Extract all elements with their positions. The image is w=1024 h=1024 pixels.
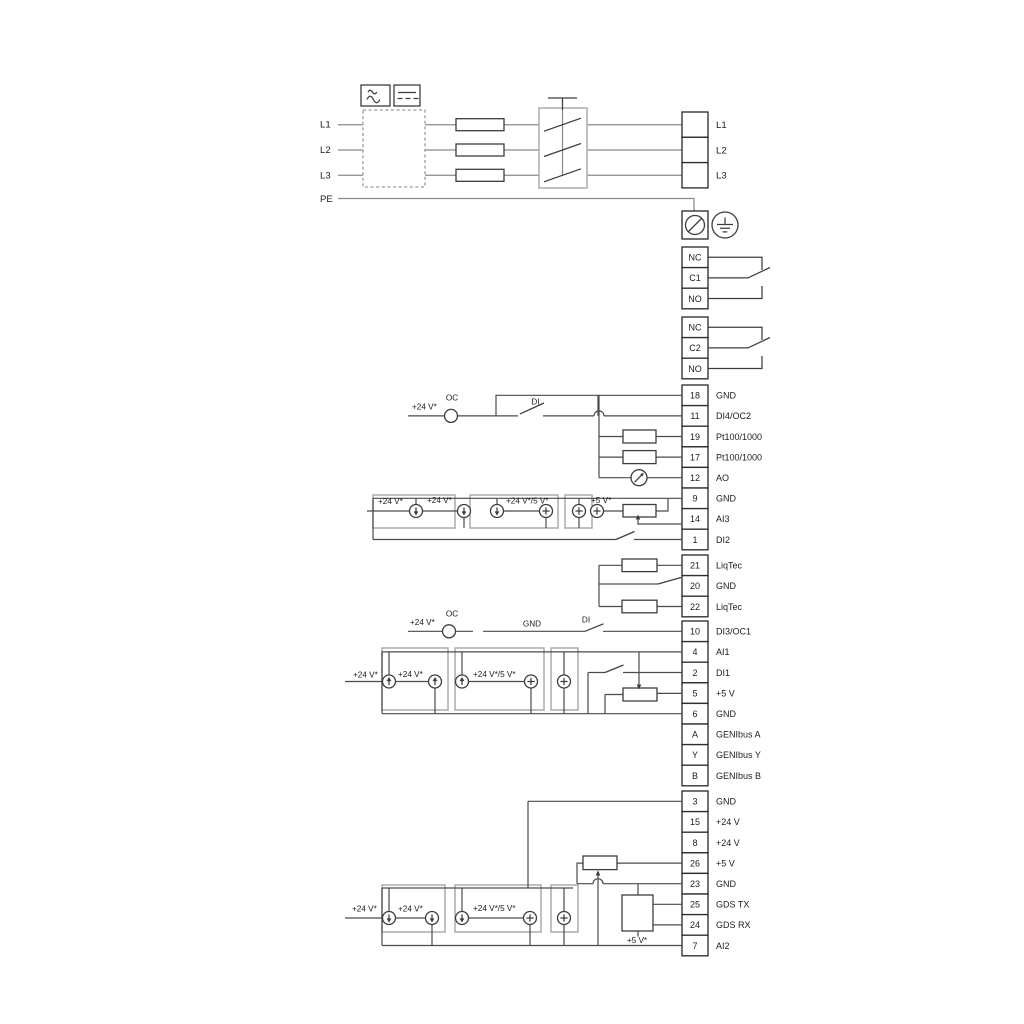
terminal-label: AI1 — [716, 647, 730, 657]
terminal-label: GND — [716, 709, 737, 719]
terminal-number: 7 — [692, 941, 697, 951]
earth-symbol — [712, 212, 738, 238]
potentiometer — [583, 856, 617, 876]
output-label-l2: L2 — [716, 145, 727, 156]
terminal-number: 20 — [690, 581, 700, 591]
current-source-icon — [458, 505, 471, 518]
annotation-24v-5v: +24 V*/5 V* — [473, 904, 516, 913]
terminal-number: 6 — [692, 709, 697, 719]
input-label-l2: L2 — [320, 145, 331, 156]
terminal-number: 18 — [690, 391, 700, 401]
ac-symbol-box — [361, 85, 390, 106]
terminal-number: 1 — [692, 535, 697, 545]
annotation-24v: +24 V* — [398, 905, 424, 914]
terminal-number: 21 — [690, 561, 700, 571]
terminal-number: 26 — [690, 858, 700, 868]
relay-terminal: NO — [688, 364, 702, 374]
mains-switch — [539, 98, 587, 188]
dc-symbol-box — [394, 85, 420, 106]
terminal-label: GENIbus Y — [716, 750, 761, 760]
terminal-label: Pt100/1000 — [716, 452, 762, 462]
oc-circle-icon — [445, 409, 458, 422]
input-label-l3: L3 — [320, 170, 331, 181]
relay-terminal: NC — [689, 323, 702, 333]
group1-circuit: +24 V* OC DI +24 V* +24 V* +24 V*/5 V* — [367, 394, 682, 540]
annotation-24v: +24 V* — [378, 497, 404, 506]
voltage-source-icon — [573, 505, 586, 518]
group3-circuit: +24 V* OC GND DI +24 V* +24 V* +24 V*/5 … — [345, 610, 682, 714]
terminal-number: 4 — [692, 647, 697, 657]
ao-meter-icon — [631, 470, 647, 486]
annotation-oc: OC — [446, 610, 458, 619]
annotation-gnd: GND — [523, 620, 541, 629]
annotation-di: DI — [582, 616, 590, 625]
terminal-group-2: 21 LiqTec 20 GND 22 LiqTec — [599, 555, 743, 617]
liqtec-resistor — [622, 600, 657, 613]
relay2-block: NC C2 NO — [682, 317, 770, 379]
terminal-label: DI1 — [716, 668, 730, 678]
potentiometer — [623, 685, 657, 702]
terminal-label: +5 V — [716, 688, 735, 698]
terminal-number: 2 — [692, 668, 697, 678]
terminal-label: AI3 — [716, 514, 730, 524]
annotation-oc: OC — [446, 394, 458, 403]
annotation-5v: +5 V* — [591, 496, 612, 505]
di-switch-blade — [585, 624, 604, 632]
gds-sensor-box — [622, 895, 653, 931]
terminal-group-4: 3 GND 15 +24 V 8 +24 V 26 +5 V 23 GND 25… — [682, 791, 751, 956]
terminal-label: GND — [716, 581, 737, 591]
annotation-di: DI — [531, 398, 539, 407]
terminal-label: GND — [716, 391, 737, 401]
pt100-resistor — [623, 451, 656, 464]
terminal-label: AI2 — [716, 941, 730, 951]
current-source-icon — [491, 505, 504, 518]
terminal-number: 15 — [690, 817, 700, 827]
voltage-source-icon — [591, 505, 604, 518]
terminal-label: Pt100/1000 — [716, 432, 762, 442]
terminal-number: 12 — [690, 473, 700, 483]
mains-terminal-block: L1 L2 L3 — [682, 112, 727, 188]
relay-terminal: NC — [689, 253, 702, 263]
annotation-24v: +24 V* — [412, 403, 438, 412]
annotation-24v-5v: +24 V*/5 V* — [473, 670, 516, 679]
terminal-label: LiqTec — [716, 602, 743, 612]
annotation-24v: +24 V* — [353, 671, 379, 680]
mains-input-section: L1 L2 L3 PE L1 — [320, 85, 738, 239]
terminal-number: 23 — [690, 879, 700, 889]
oc-circle-icon — [443, 625, 456, 638]
current-source-icon — [426, 912, 439, 925]
annotation-24v: +24 V* — [398, 670, 424, 679]
annotation-24v: +24 V* — [427, 496, 453, 505]
terminal-label: AO — [716, 473, 729, 483]
terminal-number: 25 — [690, 900, 700, 910]
terminal-cell — [682, 163, 708, 188]
terminal-label: LiqTec — [716, 561, 743, 571]
terminal-number: B — [692, 771, 698, 781]
pe-terminal — [682, 211, 708, 239]
relay1-block: NC C1 NO — [682, 247, 770, 309]
di1-switch-blade — [605, 665, 624, 673]
terminal-number: A — [692, 730, 698, 740]
input-label-pe: PE — [320, 194, 333, 205]
terminal-label: GND — [716, 879, 737, 889]
relay-terminal: C2 — [689, 343, 701, 353]
current-source-icon — [429, 675, 442, 688]
relay1-contact — [708, 257, 770, 298]
terminal-label: DI2 — [716, 535, 730, 545]
current-source-icon — [383, 912, 396, 925]
terminal-number: 10 — [690, 627, 700, 637]
phase-wires — [338, 125, 694, 211]
terminal-label: +5 V — [716, 858, 735, 868]
fuse-l2 — [456, 144, 504, 156]
relay2-contact — [708, 327, 770, 368]
voltage-source-icon — [540, 505, 553, 518]
voltage-source-icon — [558, 675, 571, 688]
fuse-l3 — [456, 169, 504, 181]
terminal-number: 8 — [692, 838, 697, 848]
terminal-number: 3 — [692, 797, 697, 807]
wiring-diagram: L1 L2 L3 PE L1 — [0, 0, 1024, 1024]
terminal-label: GDS RX — [716, 920, 751, 930]
relay-terminal: C1 — [689, 273, 701, 283]
terminal-number: 17 — [690, 452, 700, 462]
pt100-resistor — [623, 430, 656, 443]
current-source-icon — [456, 675, 469, 688]
terminal-group-1: 18 GND 11 DI4/OC2 19 Pt100/1000 17 Pt100… — [682, 385, 762, 550]
annotation-24v: +24 V* — [410, 618, 436, 627]
potentiometer — [623, 505, 656, 520]
annotation-24v-5v: +24 V*/5 V* — [506, 497, 549, 506]
current-source-icon — [456, 912, 469, 925]
voltage-source-icon — [525, 675, 538, 688]
liqtec-switch-blade — [658, 578, 681, 585]
terminal-group-3: 10 DI3/OC1 4 AI1 2 DI1 5 +5 V 6 GND A GE… — [682, 621, 761, 786]
terminal-number: 22 — [690, 602, 700, 612]
terminal-label: GDS TX — [716, 900, 749, 910]
voltage-source-icon — [558, 912, 571, 925]
terminal-label: +24 V — [716, 838, 740, 848]
current-source-icon — [410, 505, 423, 518]
terminal-number: 14 — [690, 514, 700, 524]
terminal-label: DI4/OC2 — [716, 411, 751, 421]
terminal-label: GENIbus B — [716, 771, 761, 781]
terminal-label: GND — [716, 797, 737, 807]
rfi-filter-box — [363, 110, 425, 187]
di2-switch-blade — [616, 532, 635, 540]
terminal-number: Y — [692, 750, 698, 760]
terminal-number: 24 — [690, 920, 700, 930]
terminal-label: DI3/OC1 — [716, 627, 751, 637]
annotation-24v: +24 V* — [352, 905, 378, 914]
terminal-number: 11 — [690, 411, 699, 421]
annotation-5v: +5 V* — [627, 936, 648, 945]
input-label-l1: L1 — [320, 120, 331, 131]
relay-terminal: NO — [688, 294, 702, 304]
fuse-l1 — [456, 119, 504, 131]
terminal-label: +24 V — [716, 817, 740, 827]
terminal-number: 5 — [692, 688, 697, 698]
output-label-l3: L3 — [716, 171, 727, 182]
terminal-number: 19 — [690, 432, 700, 442]
liqtec-resistor — [622, 559, 657, 572]
terminal-cell — [682, 112, 708, 137]
wiring-diagram-page: L1 L2 L3 PE L1 — [0, 0, 1024, 1024]
voltage-source-icon — [524, 912, 537, 925]
terminal-cell — [682, 137, 708, 162]
output-label-l1: L1 — [716, 120, 727, 131]
group4-circuit: +24 V* +24 V* +24 V*/5 V* +5 V* — [345, 801, 682, 945]
current-source-icon — [383, 675, 396, 688]
terminal-label: GND — [716, 494, 737, 504]
terminal-number: 9 — [692, 494, 697, 504]
terminal-label: GENIbus A — [716, 730, 761, 740]
